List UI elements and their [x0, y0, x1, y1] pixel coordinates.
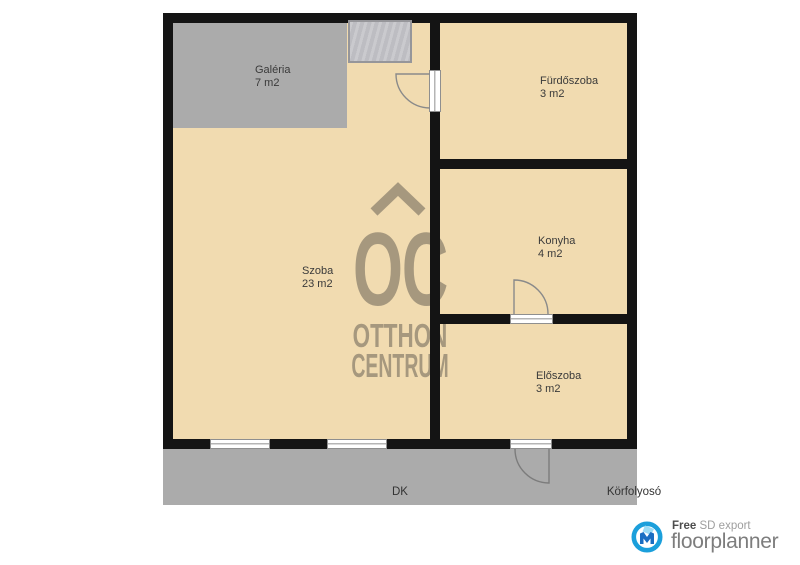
stairs-hatch	[348, 20, 412, 63]
floorplan-image: OC OTTHON CENTRUM Galéria 7 m2 Szoba 23 …	[0, 0, 800, 565]
room-area-eloszoba: 3 m2	[536, 383, 560, 396]
room-name-furdoszoba: Fürdőszoba	[540, 75, 598, 88]
room-label-galeria: Galéria 7 m2	[200, 64, 310, 77]
corridor-label: Körfolyosó	[579, 486, 689, 498]
floor-plan: OC OTTHON CENTRUM Galéria 7 m2 Szoba 23 …	[163, 13, 637, 449]
corridor-zone: DK Körfolyosó	[163, 449, 637, 505]
door-frame-entrance	[510, 439, 552, 449]
room-label-eloszoba: Előszoba 3 m2	[481, 370, 591, 383]
room-label-konyha: Konyha 4 m2	[483, 235, 593, 248]
room-name-szoba: Szoba	[302, 265, 333, 278]
door-frame-konyha-eloszoba	[510, 314, 553, 324]
room-area-galeria: 7 m2	[255, 77, 279, 90]
room-label-furdoszoba: Fürdőszoba 3 m2	[485, 75, 595, 88]
room-area-furdoszoba: 3 m2	[540, 88, 564, 101]
floorplanner-icon	[630, 520, 664, 554]
window-szoba-left	[210, 439, 270, 449]
watermark-centrum: CENTRUM	[341, 349, 459, 382]
wall-furdoszoba-konyha	[430, 159, 627, 169]
window-szoba-right	[327, 439, 387, 449]
door-frame-szoba-furdoszoba	[429, 70, 441, 112]
room-name-galeria: Galéria	[255, 64, 290, 77]
room-area-szoba: 23 m2	[302, 278, 333, 291]
room-name-eloszoba: Előszoba	[536, 370, 581, 383]
room-label-szoba: Szoba 23 m2	[247, 265, 357, 278]
orientation-label: DK	[380, 486, 420, 498]
floorplanner-branding: Free SD export floorplanner	[630, 517, 800, 562]
brand-name: floorplanner	[671, 530, 778, 554]
room-name-konyha: Konyha	[538, 235, 575, 248]
room-area-konyha: 4 m2	[538, 248, 562, 261]
